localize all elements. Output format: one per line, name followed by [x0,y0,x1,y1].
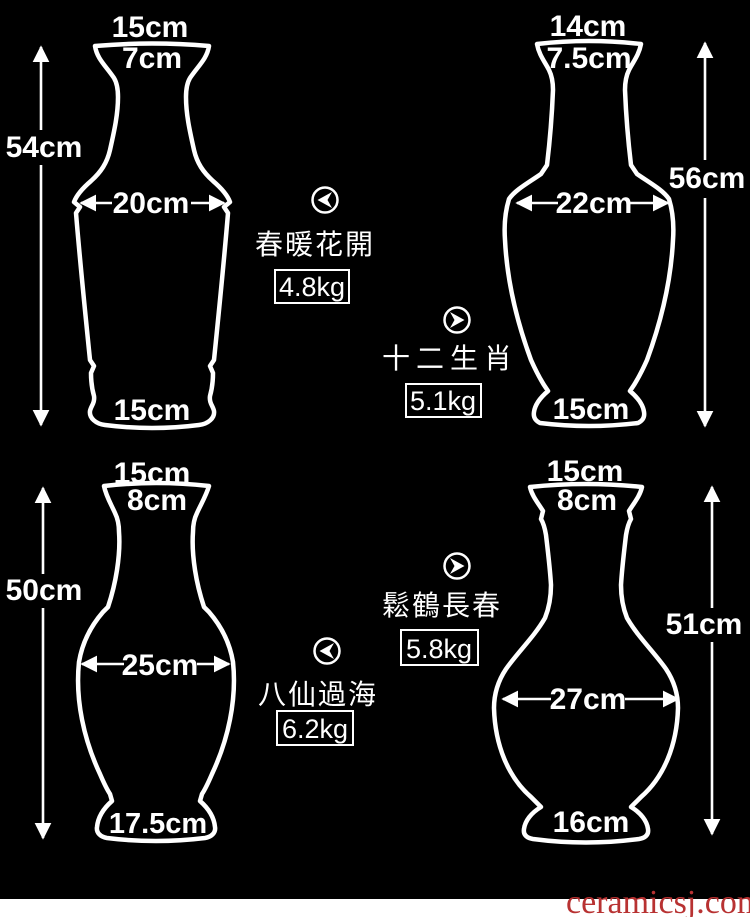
chevron-right-icon [445,308,470,333]
chevron-left-icon [315,639,340,664]
vase-1-base-label: 15cm [114,394,191,427]
vase-3-weight: 6.2kg [282,714,348,744]
watermark-text: ceramicsj.com [566,884,750,917]
vase-4-base-label: 16cm [553,806,630,839]
vase-3-group: 50cm 25cm 15cm 8cm 17.5cm [6,457,234,841]
vase-2-base-label: 15cm [553,393,630,426]
vase-3-mouth-inner-label: 8cm [127,484,187,517]
vase-3-body-label: 25cm [122,649,199,682]
vase-1-mouth-inner-label: 7cm [122,42,182,75]
vase-1-body-label: 20cm [113,187,190,220]
vase-4-name: 鬆鶴長春 [382,589,502,622]
vase-3-name: 八仙過海 [258,678,378,711]
vase-4-body-label: 27cm [550,683,627,716]
vase-2-name: 十二生肖 [382,342,518,375]
vase-2-body-label: 22cm [556,187,633,220]
vase-2-outline [505,41,674,426]
chevron-left-icon [313,188,338,213]
vase-4-mouth-inner-label: 8cm [557,484,617,517]
vase-1-height-label: 54cm [6,131,83,164]
vase-2-group: 56cm 22cm 14cm 7.5cm 15cm [505,10,746,426]
vase-2-weight: 5.1kg [410,386,476,416]
chevron-right-icon [445,554,470,579]
vase-2-height-label: 56cm [669,162,746,195]
vase-2-caption-group: 十二生肖 5.1kg [382,308,518,418]
vase-2-mouth-label: 14cm [550,10,627,43]
vase-4-group: 51cm 27cm 15cm 8cm 16cm [494,455,742,843]
vase-4-outline [494,484,678,843]
vase-2-mouth-inner-label: 7.5cm [546,42,631,75]
vase-1-weight: 4.8kg [279,272,345,302]
vase-3-base-label: 17.5cm [109,808,207,840]
vase-4-weight: 5.8kg [406,634,472,664]
vase-3-caption-group: 八仙過海 6.2kg [258,639,378,746]
vase-1-mouth-label: 15cm [112,11,189,44]
vase-4-caption-group: 鬆鶴長春 5.8kg [382,554,502,666]
vase-1-name: 春暖花開 [255,228,375,261]
vase-1-group: 54cm 20cm 15cm 7cm 15cm [6,11,230,428]
vase-1-caption-group: 春暖花開 4.8kg [255,188,375,304]
vase-4-height-label: 51cm [666,608,743,641]
vase-3-height-label: 50cm [6,574,83,607]
vase-dimension-diagram: 54cm 20cm 15cm 7cm 15cm 56cm 22cm 14cm 7… [0,0,750,917]
vase-1-outline [74,44,230,429]
